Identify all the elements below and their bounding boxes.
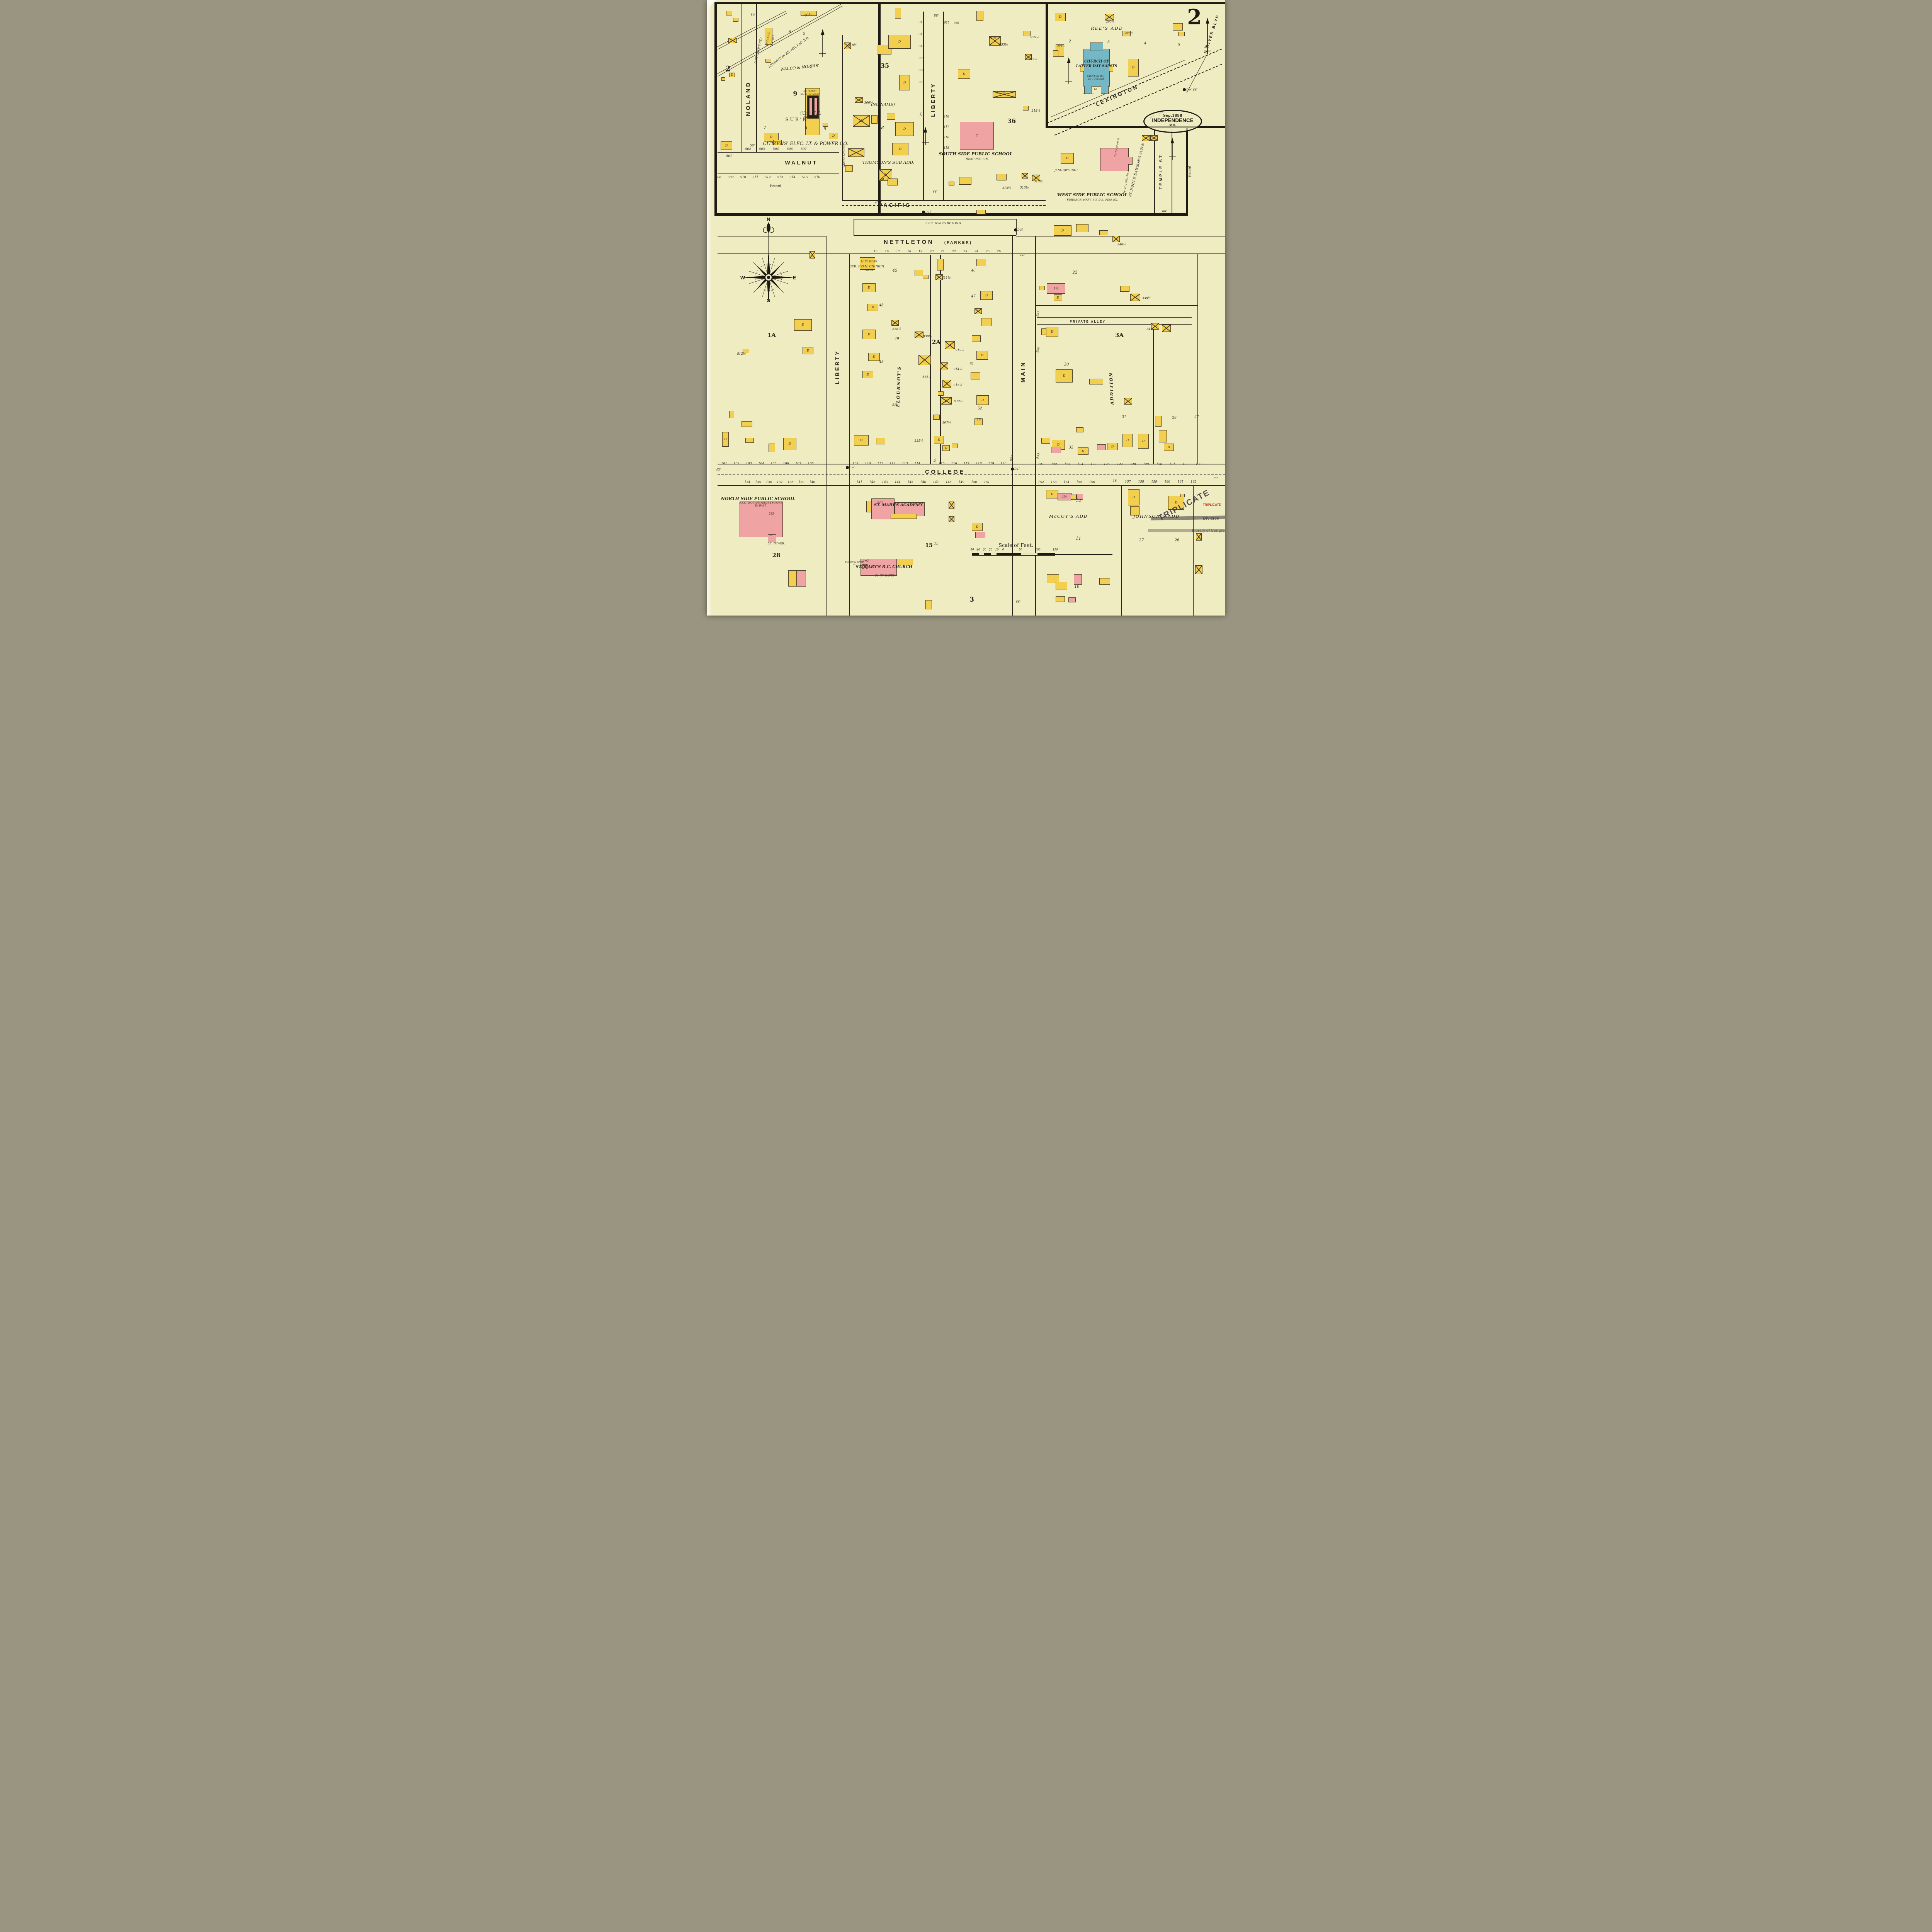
building-label: D [1126,439,1129,442]
street-line [742,3,742,152]
map-annotation: ST. MARY'S R.C. CHURCH [856,565,912,570]
map-annotation: Vacant [770,184,782,188]
building [1076,427,1083,432]
map-annotation: 313½ [1020,186,1029,189]
lot-number: 122 [1051,463,1057,466]
hydrant-dot: D.H [1011,468,1014,471]
lot-number: 137 [777,481,782,484]
lot-number: 107 [795,462,801,465]
building [1128,157,1133,165]
street-label: NETTLETON [884,239,934,245]
building: D [895,122,914,136]
scale-bar-segment [978,553,985,556]
building [848,148,864,157]
map-annotation: 907 [1010,455,1014,462]
building [1162,325,1171,332]
map-annotation: WEST SIDE PUBLIC SCHOOL [1057,193,1128,197]
map-annotation: 2 FR. DWG'S BEYOND [925,222,961,225]
lot-number: 135 [755,481,761,484]
lot-number: 312 [918,21,924,24]
scale-bar-segment [1003,553,1020,556]
building-label: 1½ [1054,287,1059,290]
building: D [1122,434,1133,447]
building [923,275,929,279]
map-annotation: TOWER 50' [1082,93,1094,95]
block-number: 18 [977,418,981,421]
street-line [718,464,1225,464]
lot-number: 110 [865,462,871,465]
map-annotation: 338½ [1142,297,1151,300]
building [769,444,775,452]
map-annotation: 838⅓ [892,328,901,331]
building: D [1164,444,1174,451]
map-annotation: ST. MARY'S ACADEMY [874,503,923,508]
street-label: WALNUT [785,160,818,166]
building: D [854,435,869,446]
lot-number: 509 [728,176,733,179]
map-annotation: CITIZENS' ELEC. LT. & POWER CO. [763,141,849,146]
building-label: 2 [884,173,886,177]
scale-tick: 20 [989,548,993,551]
scale-tick: 50 [1019,548,1022,551]
map-annotation: 318¼ [1031,109,1040,112]
map-annotation: 14' TO EAVES [861,261,877,263]
building [1089,379,1103,384]
block-number: 22 [1073,271,1078,275]
building-label: D [731,73,733,77]
building-label: D [1168,446,1170,449]
building-label: D [945,447,947,450]
building [997,174,1007,180]
block-number: 3 [1107,41,1110,44]
building [1180,494,1185,497]
lot-number: 17 [896,250,900,253]
building [745,438,754,443]
section-border [878,2,881,216]
lot-number: 159 [1151,480,1157,483]
compass-e: E [793,275,796,281]
building [1022,173,1028,179]
dashed-street-centerline [718,474,1225,474]
lot-number: 151 [984,481,990,484]
map-annotation: 318½ [1034,180,1043,183]
map-annotation: 4 [770,534,772,537]
building [915,270,923,276]
map-canvas: DDDDDD1½DD22DDDDDDDDDDDDDD222DDDDDD1½DDD… [707,0,1225,616]
lot-number: 26 [997,250,1001,253]
triplicate-division-line: Division [1203,516,1219,521]
map-annotation: 89' [1214,477,1218,480]
building [876,438,885,444]
map-annotation: LATTER DAY SAINTS [1076,65,1117,68]
scale-bar-extension [1055,554,1112,555]
building: D [1107,443,1118,450]
building [733,18,738,22]
lot-number: 508 [715,176,721,179]
street-line [943,12,944,201]
street-label: COLLEGE [925,469,965,475]
map-annotation: REE'S ADD [1091,26,1123,31]
building: D [1061,153,1074,164]
building [1053,50,1058,57]
building: D [729,73,735,77]
lot-number: 134 [744,481,750,484]
map-annotation: 88' [934,14,939,17]
building: 1½ [1047,283,1065,294]
street-line [756,3,757,152]
block-number: 2 [725,65,731,73]
map-annotation: 320½ [997,91,1005,94]
building [1124,398,1132,405]
street-line [854,235,1016,236]
lot-number: 315 [943,146,949,150]
building [768,534,776,542]
building [1130,294,1140,301]
lot-number: 516 [814,176,820,179]
lot-number: 162 [1190,480,1196,483]
street-line [1154,129,1155,213]
building: D [1128,489,1139,505]
map-annotation: 838½ [923,335,932,338]
lot-number: 106 [783,462,789,465]
building-label: D [1061,229,1064,232]
block-number: 9 [793,91,797,97]
lot-number: 511 [752,176,758,179]
lot-number: 123 [1064,463,1070,466]
building: D [934,436,944,444]
building [1041,438,1050,444]
building-label: D [1133,496,1135,499]
building [729,411,734,418]
building-label: D [903,81,906,84]
lot-number: 24 [975,250,978,253]
building [897,559,913,565]
building-label: D [963,73,965,76]
map-annotation: 936 [1036,347,1040,353]
lot-number: 515 [802,176,808,179]
building-label: D [1057,296,1059,299]
scale-tick: 10 [995,548,999,551]
map-annotation: 501 [726,155,732,158]
building [871,115,878,124]
lot-number: 143 [882,481,888,484]
map-annotation: 18 [1094,88,1097,90]
building [1105,14,1114,20]
building [1112,236,1120,242]
building-label: D [724,438,726,441]
map-annotation: 307½ [942,421,951,424]
building-label: D [899,148,901,151]
map-annotation: ST. JOHN F. DAWSON'S ADD'N [1129,143,1146,197]
map-annotation: 2 ARC. DYN. [803,117,817,119]
lot-number: 25 [986,250,990,253]
block-number: 47 [971,295,975,298]
lot-number: 133 [1196,463,1201,466]
building: D [976,351,988,360]
block-number: 26 [1175,539,1180,543]
building: D [888,35,911,49]
building-label: D [868,333,870,336]
map-annotation: 96' TO 1 STO. BR. D [1124,170,1130,194]
building [915,332,923,338]
block-number: 45 [893,269,898,273]
block-number: 2A [932,339,940,345]
building-label: D [1051,330,1053,333]
scale-tick: 150 [1053,548,1058,551]
building [1039,286,1045,290]
building [1155,416,1162,427]
street-line [1035,305,1197,306]
building: 2 [960,122,994,150]
building [975,308,982,314]
building [742,421,752,427]
map-annotation: 912½ [954,400,963,403]
lot-number: 506 [787,148,793,151]
building [1099,578,1110,585]
block-number: 9 [824,127,827,131]
building: D [862,371,873,378]
building-label: D [770,136,772,139]
section-border [1186,128,1188,216]
building [940,362,948,369]
map-annotation: 66' [1020,254,1025,257]
building-label: D [868,286,870,289]
compass-w: W [740,275,745,281]
hydrant-label: D.H [1014,468,1020,471]
building [976,259,986,266]
building [721,77,725,81]
building: 2 [945,341,955,349]
street-line [854,219,1016,219]
map-annotation: 88' [1162,210,1167,213]
map-annotation: 926 [954,22,959,24]
scale-title: Scale of Feet. [998,543,1033,549]
building: D [1138,434,1149,449]
lot-number: 119 [988,462,994,465]
street-line [854,219,854,235]
map-annotation: 812½ [737,352,746,355]
building-label: D [1057,443,1060,446]
lot-number: 149 [958,481,964,484]
street-line [1197,253,1198,464]
building-label: D [981,399,984,402]
map-annotation: CHURCH OF [1084,60,1109,63]
block-number: 8 [881,126,884,130]
building-label: 2 [946,382,948,385]
street-line [1121,485,1122,616]
map-annotation: 211½ [942,276,951,279]
building-label: D [1051,493,1053,496]
map-annotation: 66' [933,190,937,194]
lot-number: 105 [770,462,776,465]
lot-number: 155 [1076,481,1082,484]
building-label: D [789,442,791,446]
lot-number: 507 [801,148,806,151]
map-annotation: HEAT: HOT AIR. [966,158,989,160]
block-number: 53 [892,403,896,407]
lot-number: 514 [789,176,795,179]
lot-number: 131 [1169,463,1175,466]
lot-number: 22 [952,250,956,253]
building: D [1055,13,1066,21]
scale-bar-segment [1020,553,1038,556]
section-border [1046,2,1048,128]
building: D [1054,294,1062,301]
scale-bar-segment [997,553,1003,556]
lot-number: 116 [951,462,957,465]
lot-number: 23 [963,250,967,253]
street-label: (PARKER) [944,241,972,245]
map-annotation: NORTH SIDE PUBLIC SCHOOL [721,497,795,501]
building-label: D [985,294,988,297]
map-annotation: 915½ [955,349,964,352]
map-annotation: 75' [853,564,856,566]
building-label: D [802,323,804,327]
lot-number: 144 [895,481,900,484]
street-line [718,485,1225,486]
hydrant-label: D.H [1017,228,1023,231]
block-number: 61 [969,362,974,366]
block-number: 46 [971,269,975,272]
lot-number: 307 [918,81,924,84]
street-line [1016,236,1225,236]
building-label: 2 [945,400,947,403]
scale-bar-segment [985,553,991,556]
street-line [842,35,843,200]
block-number: 28 [1172,416,1176,420]
map-annotation: 925 [944,21,949,24]
street-label: LIBERTY [930,82,936,117]
building [765,59,771,63]
building [1024,31,1031,36]
lot-number: 157 [1125,480,1131,483]
building-label: D [1082,450,1084,453]
lot-number: 124 [1077,463,1083,466]
stamp-city: INDEPENDENCE [1145,118,1201,123]
street-line [1012,236,1013,616]
map-annotation: 18 [1113,480,1117,483]
building [918,355,931,365]
lot-number: 153 [1051,481,1056,484]
building: D [899,75,910,90]
lot-number: 128 [1130,463,1136,466]
compass-n: N [767,216,770,222]
street-label: PACIFIC [879,202,911,208]
building: D [1128,59,1139,77]
building: 2 [941,397,952,405]
map-annotation: FURNACE: HEAT. 1-3 GAL. FIRE EX. [1067,199,1118,201]
scale-tick: 40 [977,548,980,551]
lot-number: 18 [907,250,911,253]
building [1100,148,1129,171]
building [891,514,917,519]
block-number: 15 [925,543,932,549]
building: D [1054,225,1071,236]
block-number: 7 [764,126,766,130]
lot-number: 19 [918,250,922,253]
building: D [862,283,876,292]
building [937,259,944,270]
block-number: 52 [978,407,982,410]
map-annotation: 28' TO EAVES [1088,78,1104,80]
building [938,391,944,396]
building [887,114,895,120]
building [1076,224,1088,232]
block-number: 4 [1144,42,1146,45]
lot-number: 115 [939,462,944,465]
building-label: 2 [949,344,951,347]
building [976,210,986,214]
map-annotation: 353½ [999,43,1008,46]
map-annotation: 914½ [953,368,962,371]
building-label: D [867,373,869,376]
map-annotation: Vacant [1188,166,1192,178]
block-number: 1A [767,332,776,338]
block-number: 48 [879,304,883,307]
lot-number: 309 [918,57,924,60]
map-annotation: 835½ [922,376,931,379]
map-annotation: 937 [1036,311,1040,317]
block-number: 27 [1139,539,1144,543]
map-annotation: (NO NAME) [871,103,895,107]
building [981,318,992,326]
building-label: D [1066,157,1068,160]
lot-number: 108 [808,462,813,465]
map-annotation: 922½ [1028,58,1037,61]
lot-number: 316 [943,136,949,139]
map-annotation: WALDO & NORRIS' [780,64,819,72]
lot-number: 510 [740,176,746,179]
building [1090,43,1103,51]
building: D [958,70,970,79]
map-annotation: 201½ [1057,45,1065,48]
publisher-oval-stamp: Sep.1898 INDEPENDENCE MO. [1143,110,1202,133]
building [845,165,853,172]
lot-number: 502 [745,148,751,151]
lot-number: 513 [777,176,783,179]
map-annotation: SOUTH SIDE PUBLIC SCHOOL [939,152,1013,156]
building: D [976,395,989,405]
building: D [1046,327,1058,337]
hydrant-dot: D.H [1183,88,1186,91]
map-annotation: LEXINGTON BR. MO. PAC. R.R. [768,36,810,69]
street-line [718,152,839,153]
map-annotation: Vacant Ground [843,145,846,168]
map-annotation: 313¼ [1002,187,1011,190]
street-line [1035,236,1036,616]
scale-bar-segment [1038,553,1055,556]
scale-bar-segment [991,553,997,556]
map-annotation: GER. EVAN. CHURCH [849,265,884,268]
lot-number: 111 [877,462,883,465]
lot-number: 138 [787,481,793,484]
lot-number: 126 [1104,463,1109,466]
building [797,570,806,587]
building-label: D [872,306,874,309]
building: D [722,432,729,447]
building: D [892,143,908,155]
block-number: 5 [803,32,805,36]
building [1068,597,1076,602]
lot-number: 118 [976,462,981,465]
building [1097,444,1106,450]
street-line [826,236,827,616]
map-annotation: 2 ENG. 60 H.P. ER. [800,111,820,114]
map-annotation: JANITOR'S DWG [1054,169,1078,172]
lot-number: 146 [920,481,926,484]
lot-number: 104 [758,462,764,465]
map-annotation: STOVE [865,270,874,272]
